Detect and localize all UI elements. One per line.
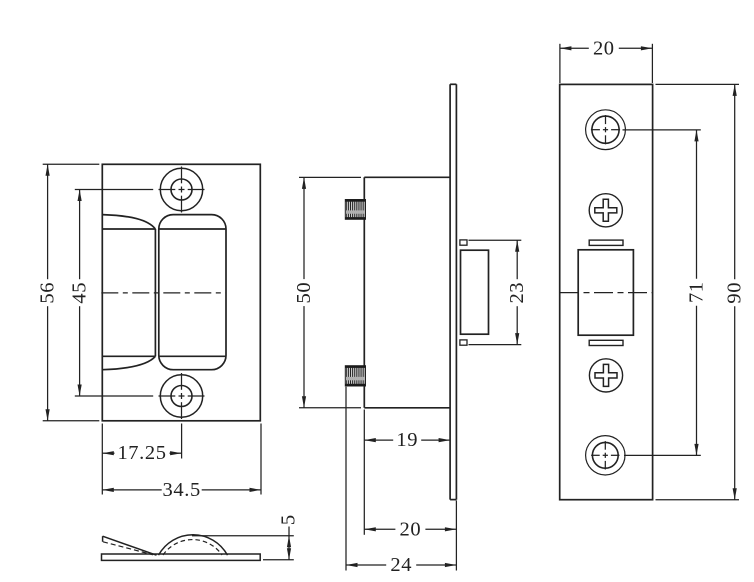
svg-text:45: 45 <box>69 282 91 304</box>
svg-text:20: 20 <box>593 37 615 59</box>
svg-text:56: 56 <box>37 282 59 304</box>
svg-text:90: 90 <box>724 282 746 304</box>
svg-text:19: 19 <box>396 429 418 451</box>
svg-text:71: 71 <box>686 281 708 303</box>
svg-text:23: 23 <box>506 282 528 304</box>
svg-text:20: 20 <box>400 518 422 540</box>
svg-text:50: 50 <box>293 282 315 304</box>
svg-text:24: 24 <box>390 554 412 576</box>
svg-text:17.25: 17.25 <box>117 442 166 464</box>
svg-text:5: 5 <box>278 514 300 525</box>
svg-text:34.5: 34.5 <box>163 479 201 501</box>
